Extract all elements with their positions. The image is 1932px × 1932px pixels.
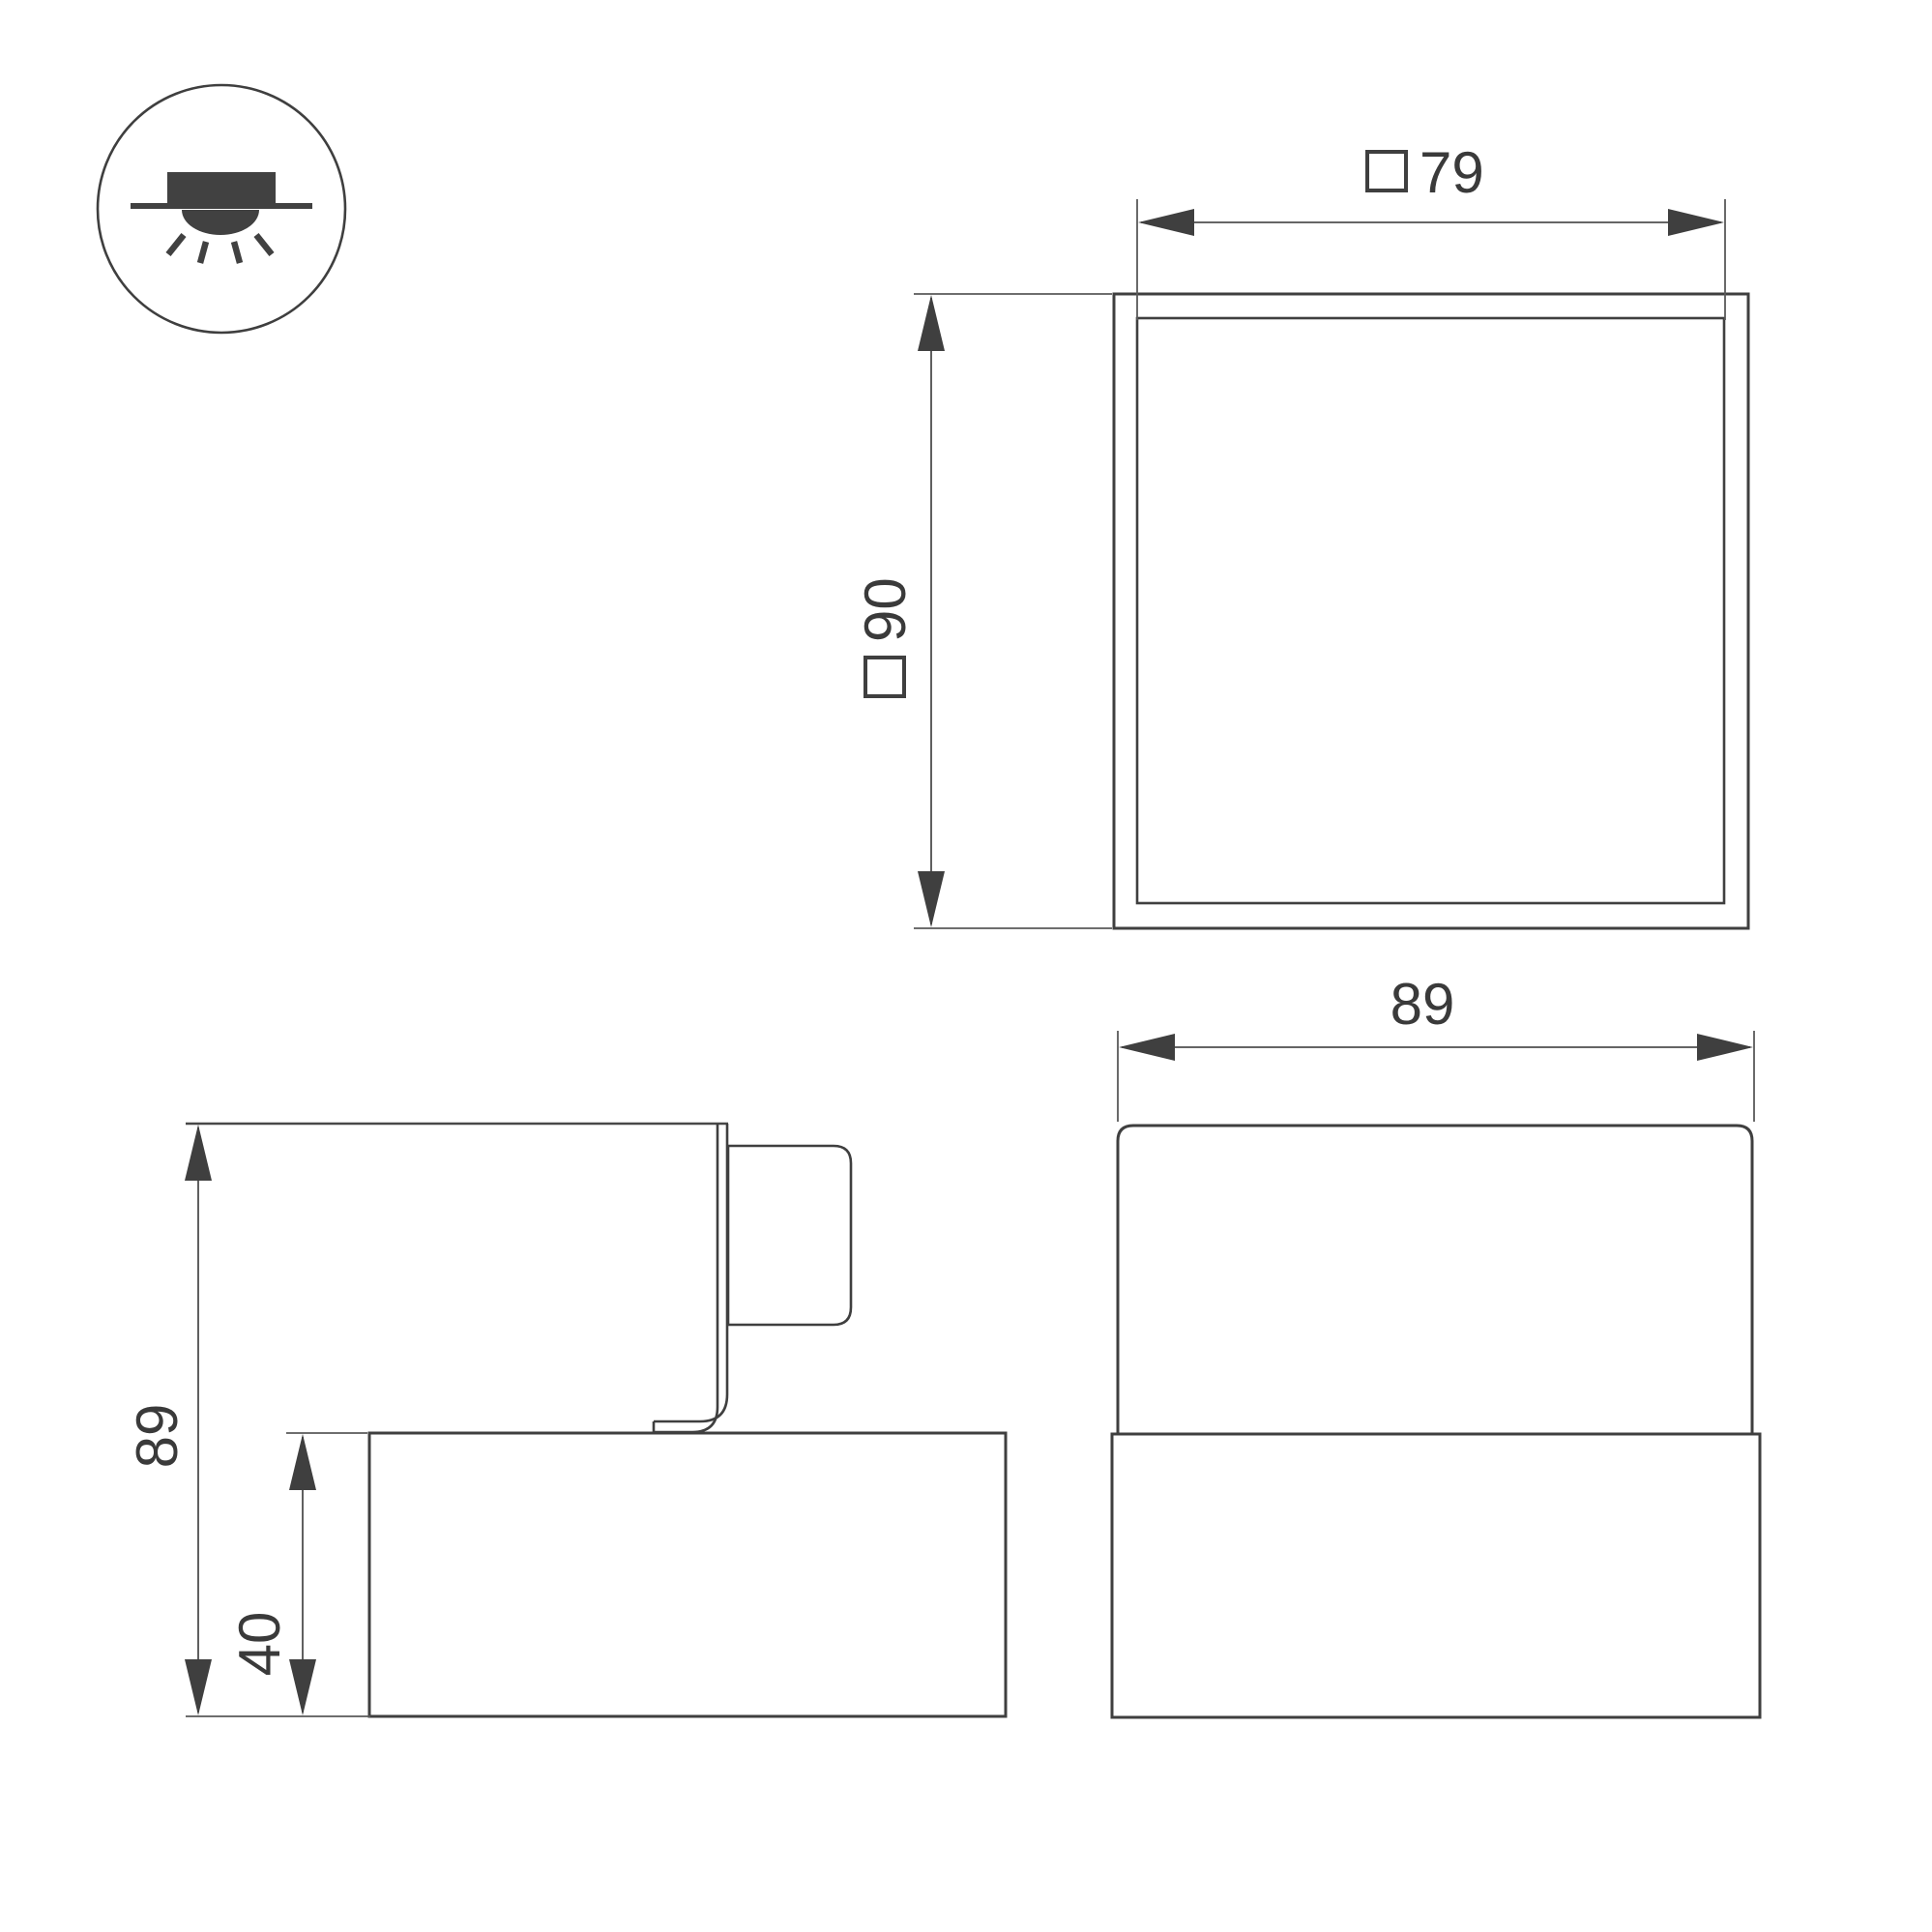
arrow-right-icon	[1668, 209, 1724, 236]
square-symbol	[865, 658, 904, 696]
light-ray	[256, 235, 272, 254]
mounting-bracket	[654, 1124, 851, 1432]
dimension-label: 79	[1420, 140, 1484, 205]
arrow-up-icon	[918, 295, 945, 351]
light-ray	[200, 242, 206, 263]
base-body	[1112, 1434, 1760, 1717]
light-rays	[168, 235, 272, 263]
light-ray	[234, 242, 240, 263]
dimension-overall-width: 89	[1118, 972, 1754, 1122]
arrow-left-icon	[1138, 209, 1194, 236]
arrow-right-icon	[1697, 1034, 1753, 1061]
top-view: 79 90	[853, 140, 1748, 928]
base-body	[369, 1433, 1006, 1716]
rotated-label-group: 89	[125, 1404, 190, 1469]
dimension-label: 40	[227, 1612, 292, 1677]
lamp-dome-glyph	[182, 210, 259, 235]
upper-body	[1118, 1126, 1752, 1434]
light-ray	[168, 235, 184, 254]
front-view: 89	[1112, 972, 1760, 1717]
technical-drawing-page: 79 90	[0, 0, 1932, 1932]
bracket-clip	[728, 1146, 851, 1325]
arrow-down-icon	[918, 871, 945, 927]
dimension-label: 90	[853, 577, 918, 642]
arrow-up-icon	[185, 1125, 212, 1181]
outer-square	[1114, 294, 1748, 928]
dimension-outer-height: 90	[853, 294, 1112, 928]
arrow-up-icon	[289, 1434, 316, 1490]
surface-mount-downlight-icon	[98, 85, 345, 333]
dimension-label: 89	[125, 1404, 190, 1469]
bracket-outer-line	[654, 1124, 717, 1432]
arrow-down-icon	[185, 1659, 212, 1715]
square-symbol	[1367, 152, 1406, 190]
rotated-label-group: 90	[853, 577, 918, 696]
side-view: 89 40	[125, 1124, 1006, 1716]
dimension-base-height: 40	[227, 1433, 367, 1715]
arrow-left-icon	[1119, 1034, 1175, 1061]
aperture-square	[1137, 318, 1724, 903]
rotated-label-group: 40	[227, 1612, 292, 1677]
bracket-inner-line	[654, 1124, 727, 1421]
arrow-down-icon	[289, 1659, 316, 1715]
dimension-label: 89	[1390, 972, 1455, 1037]
luminaire-dimension-drawing: 79 90	[0, 0, 1932, 1932]
fixture-body-glyph	[167, 172, 276, 204]
